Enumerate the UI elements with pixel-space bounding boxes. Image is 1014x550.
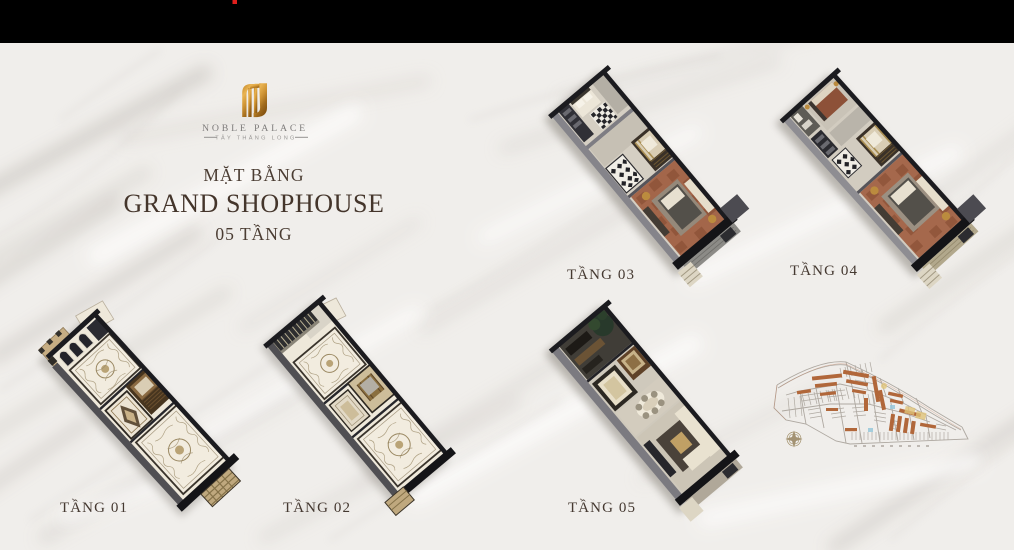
svg-text:TÂY THĂNG LONG: TÂY THĂNG LONG (215, 135, 296, 142)
svg-text:05 TẦNG: 05 TẦNG (215, 224, 292, 244)
svg-text:NOBLE PALACE: NOBLE PALACE (202, 123, 308, 134)
svg-text:TẦNG 02: TẦNG 02 (283, 499, 351, 516)
svg-text:GRAND SHOPHOUSE: GRAND SHOPHOUSE (123, 189, 384, 218)
svg-text:TẦNG 05: TẦNG 05 (568, 499, 636, 516)
svg-text:TẦNG 04: TẦNG 04 (790, 262, 858, 279)
svg-text:MẶT BẰNG: MẶT BẰNG (203, 165, 304, 185)
svg-text:TẦNG 03: TẦNG 03 (567, 266, 635, 283)
svg-text:TẦNG 01: TẦNG 01 (60, 499, 128, 516)
